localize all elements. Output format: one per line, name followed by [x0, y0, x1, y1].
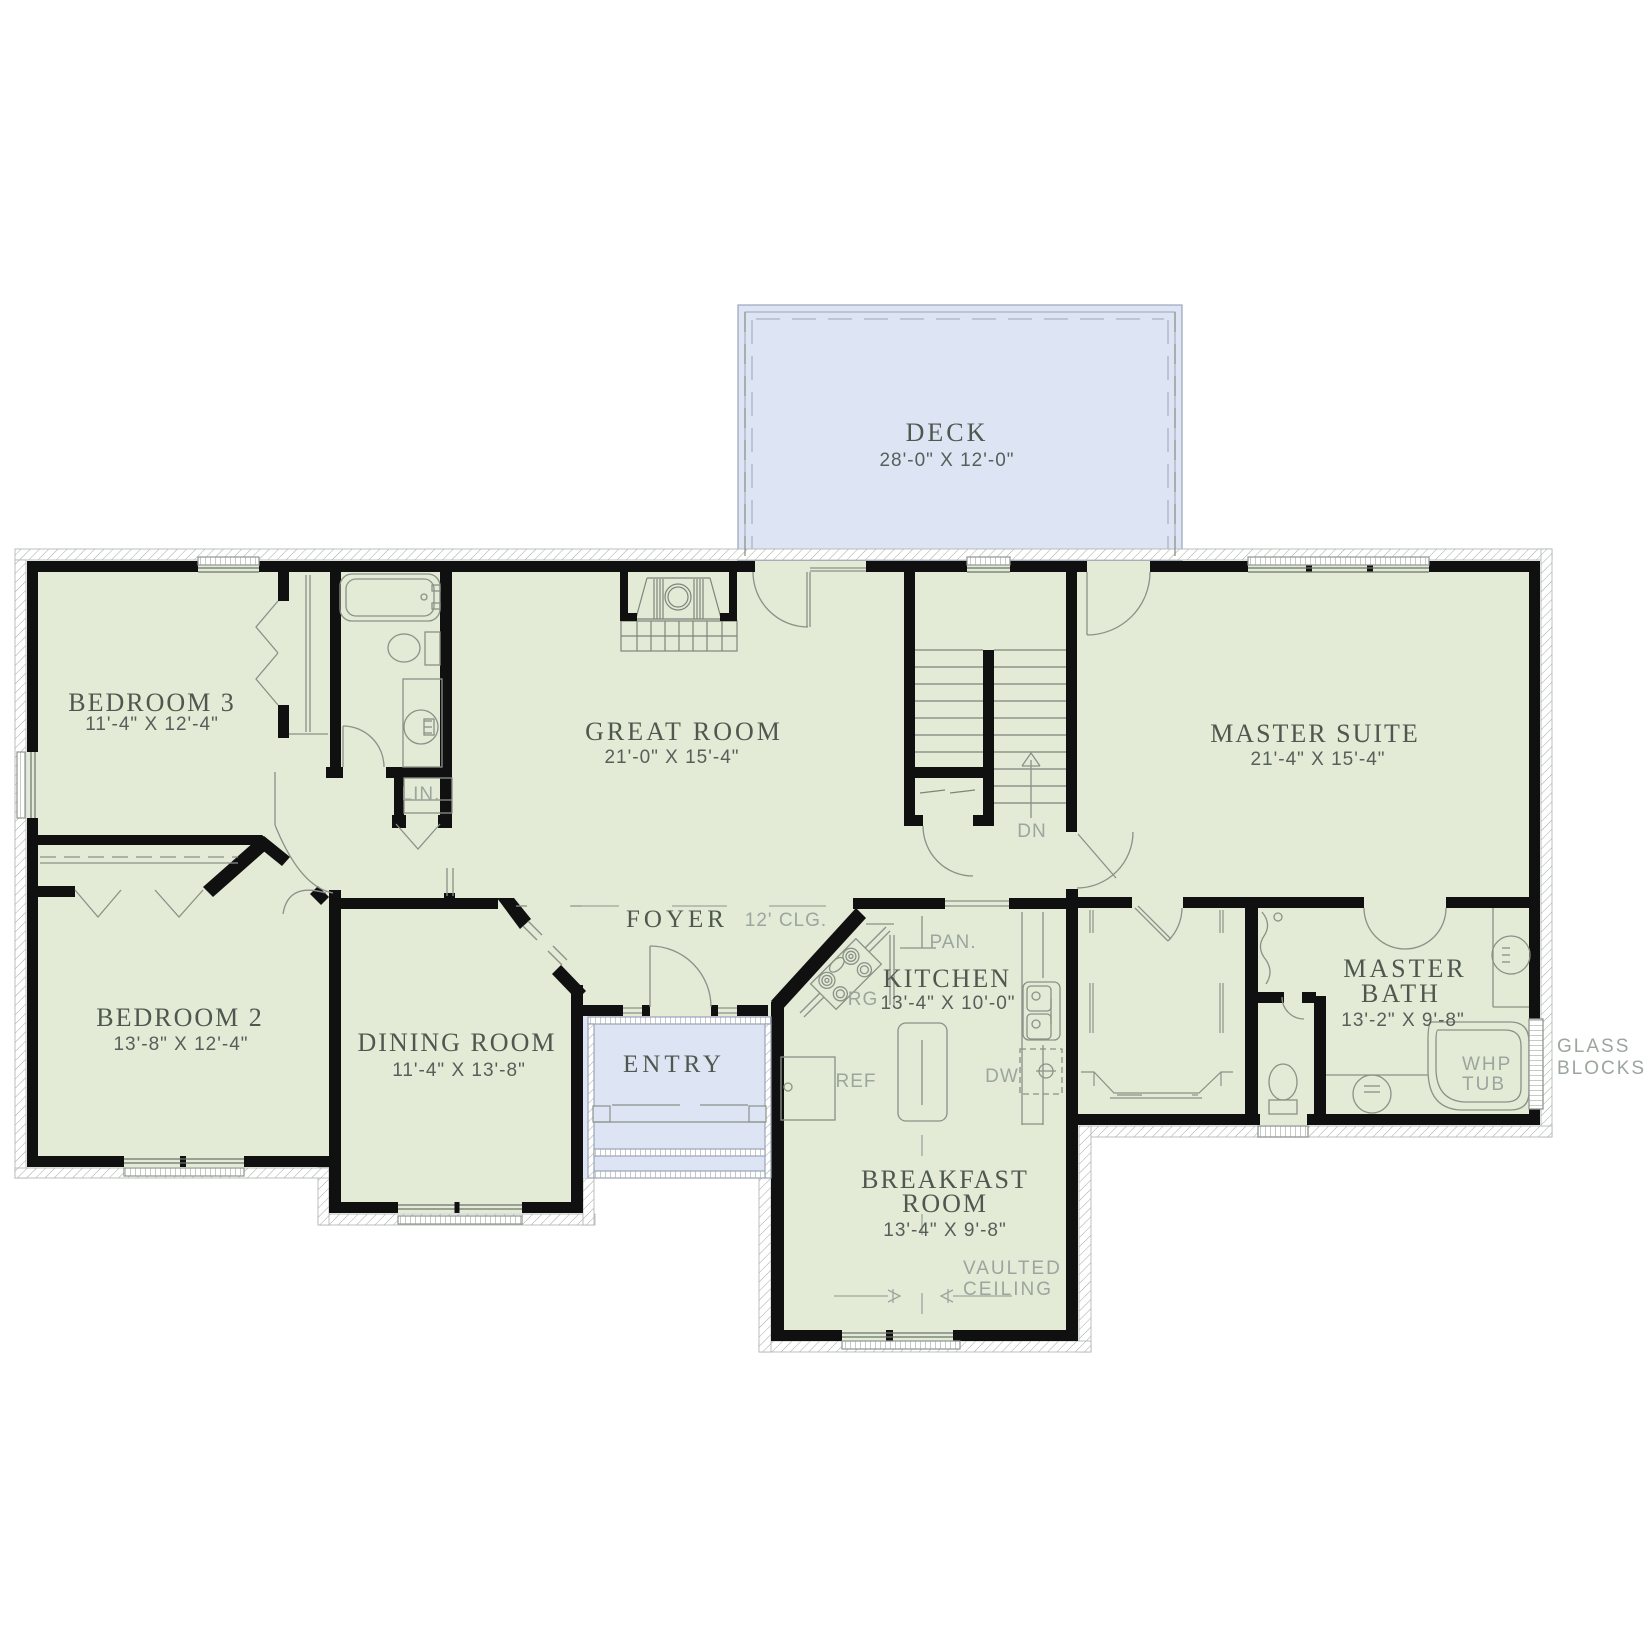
svg-text:PAN.: PAN.	[930, 932, 977, 953]
svg-text:MASTER SUITE: MASTER SUITE	[1210, 719, 1420, 748]
svg-text:KITCHEN: KITCHEN	[883, 964, 1011, 993]
svg-text:21'-0" X 15'-4": 21'-0" X 15'-4"	[604, 747, 739, 768]
svg-text:BLOCKS: BLOCKS	[1557, 1058, 1646, 1079]
svg-text:21'-4" X 15'-4": 21'-4" X 15'-4"	[1250, 749, 1385, 770]
svg-text:WHP: WHP	[1462, 1054, 1512, 1075]
svg-text:11'-4" X 13'-8": 11'-4" X 13'-8"	[392, 1060, 526, 1081]
svg-text:CEILING: CEILING	[963, 1279, 1053, 1300]
svg-text:ENTRY: ENTRY	[623, 1051, 725, 1078]
svg-text:28'-0" X 12'-0": 28'-0" X 12'-0"	[879, 450, 1014, 471]
svg-text:BEDROOM 3: BEDROOM 3	[68, 688, 236, 717]
svg-text:DINING ROOM: DINING ROOM	[358, 1028, 557, 1057]
svg-text:DECK: DECK	[906, 418, 989, 447]
svg-text:DN: DN	[1017, 821, 1046, 842]
svg-text:FOYER: FOYER	[626, 906, 728, 933]
svg-text:GLASS: GLASS	[1557, 1036, 1630, 1057]
svg-text:BEDROOM 2: BEDROOM 2	[96, 1003, 264, 1032]
svg-text:GREAT ROOM: GREAT ROOM	[585, 717, 783, 746]
svg-text:13'-4" X 9'-8": 13'-4" X 9'-8"	[883, 1220, 1006, 1241]
svg-text:TUB: TUB	[1462, 1074, 1506, 1095]
svg-text:BATH: BATH	[1361, 979, 1441, 1008]
svg-text:13'-4" X 10'-0": 13'-4" X 10'-0"	[880, 993, 1015, 1014]
svg-text:VAULTED: VAULTED	[963, 1258, 1062, 1279]
svg-text:RG: RG	[848, 989, 879, 1010]
svg-text:11'-4" X 12'-4": 11'-4" X 12'-4"	[85, 714, 219, 735]
svg-text:DW: DW	[985, 1066, 1019, 1087]
svg-text:12' CLG.: 12' CLG.	[745, 910, 827, 931]
svg-text:REF: REF	[836, 1071, 877, 1092]
svg-text:LIN.: LIN.	[402, 784, 441, 805]
svg-text:ROOM: ROOM	[902, 1189, 988, 1218]
svg-text:13'-2" X 9'-8": 13'-2" X 9'-8"	[1341, 1010, 1464, 1031]
svg-text:13'-8" X 12'-4": 13'-8" X 12'-4"	[113, 1034, 248, 1055]
